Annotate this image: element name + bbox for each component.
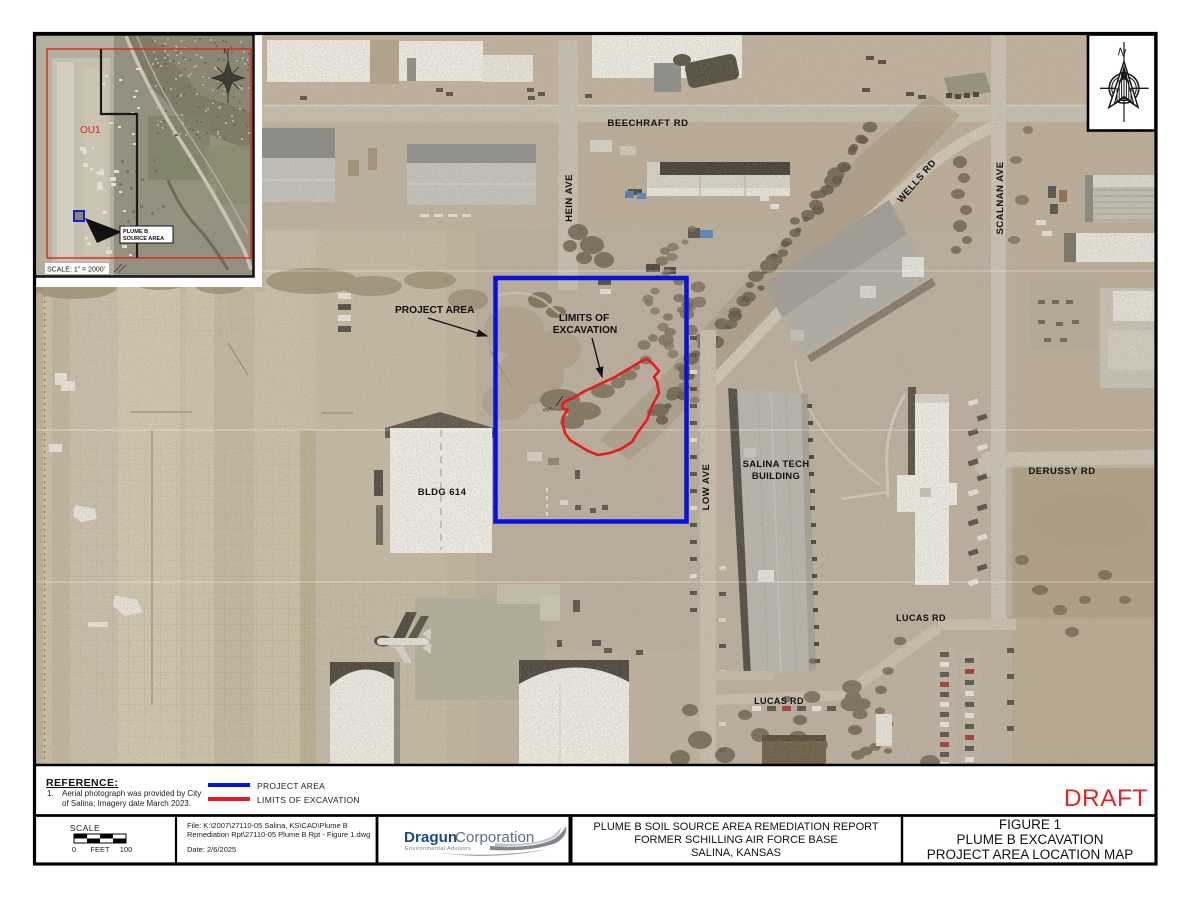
svg-text:EXCAVATION: EXCAVATION (553, 325, 618, 336)
svg-text:SALINA, KANSAS: SALINA, KANSAS (691, 847, 781, 859)
svg-text:LIMITS OF: LIMITS OF (559, 313, 609, 324)
svg-text:DRAFT: DRAFT (1064, 785, 1148, 812)
svg-text:PROJECT AREA: PROJECT AREA (395, 305, 475, 316)
svg-text:LUCAS RD: LUCAS RD (896, 613, 946, 623)
svg-text:LUCAS RD: LUCAS RD (754, 696, 804, 706)
svg-text:FEET: FEET (90, 845, 110, 854)
svg-text:REFERENCE:: REFERENCE: (46, 777, 118, 789)
svg-text:SCALNAN AVE: SCALNAN AVE (995, 161, 1006, 234)
svg-text:Corporation: Corporation (455, 829, 534, 846)
svg-text:FORMER SCHILLING AIR FORCE BAS: FORMER SCHILLING AIR FORCE BASE (634, 834, 838, 846)
svg-text:PLUME B: PLUME B (123, 229, 148, 235)
svg-text:PLUME B EXCAVATION: PLUME B EXCAVATION (956, 832, 1103, 847)
svg-text:LOW AVE: LOW AVE (701, 464, 712, 511)
svg-text:PROJECT AREA: PROJECT AREA (257, 781, 325, 791)
svg-text:100: 100 (120, 845, 133, 854)
svg-text:BUILDING: BUILDING (752, 471, 800, 482)
svg-text:SALINA TECH: SALINA TECH (743, 459, 810, 470)
svg-text:PROJECT AREA LOCATION MAP: PROJECT AREA LOCATION MAP (927, 847, 1134, 862)
svg-text:Remediation Rpt\27110-05 Plume: Remediation Rpt\27110-05 Plume B Rpt - F… (187, 830, 370, 839)
svg-text:SOURCE AREA: SOURCE AREA (123, 236, 164, 242)
svg-text:LIMITS OF EXCAVATION: LIMITS OF EXCAVATION (257, 795, 360, 805)
svg-text:OU1: OU1 (80, 125, 101, 136)
svg-text:Aerial photograph was provided: Aerial photograph was provided by City (62, 789, 201, 798)
svg-text:0: 0 (72, 845, 76, 854)
svg-text:File: K:\2007\27110-05 Salina,: File: K:\2007\27110-05 Salina, KS\CAD\Pl… (187, 821, 348, 830)
svg-text:SCALE: 1” = 2000’: SCALE: 1” = 2000’ (47, 267, 106, 274)
svg-text:FIGURE 1: FIGURE 1 (999, 817, 1061, 832)
svg-text:1.: 1. (47, 789, 54, 798)
svg-text:BLDG 614: BLDG 614 (418, 487, 467, 498)
svg-text:HEIN AVE: HEIN AVE (564, 174, 575, 222)
svg-text:SCALE: SCALE (70, 823, 100, 833)
svg-text:of Salina; Imagery date March: of Salina; Imagery date March 2023. (62, 799, 191, 808)
svg-text:DERUSSY RD: DERUSSY RD (1028, 466, 1095, 477)
svg-text:Environmental Advisors: Environmental Advisors (405, 846, 471, 852)
svg-text:Date: 2/6/2025: Date: 2/6/2025 (187, 845, 236, 854)
svg-text:Dragun: Dragun (404, 829, 457, 846)
svg-text:BEECHRAFT RD: BEECHRAFT RD (608, 118, 689, 129)
svg-text:PLUME B SOIL SOURCE AREA REMED: PLUME B SOIL SOURCE AREA REMEDIATION REP… (593, 821, 879, 833)
